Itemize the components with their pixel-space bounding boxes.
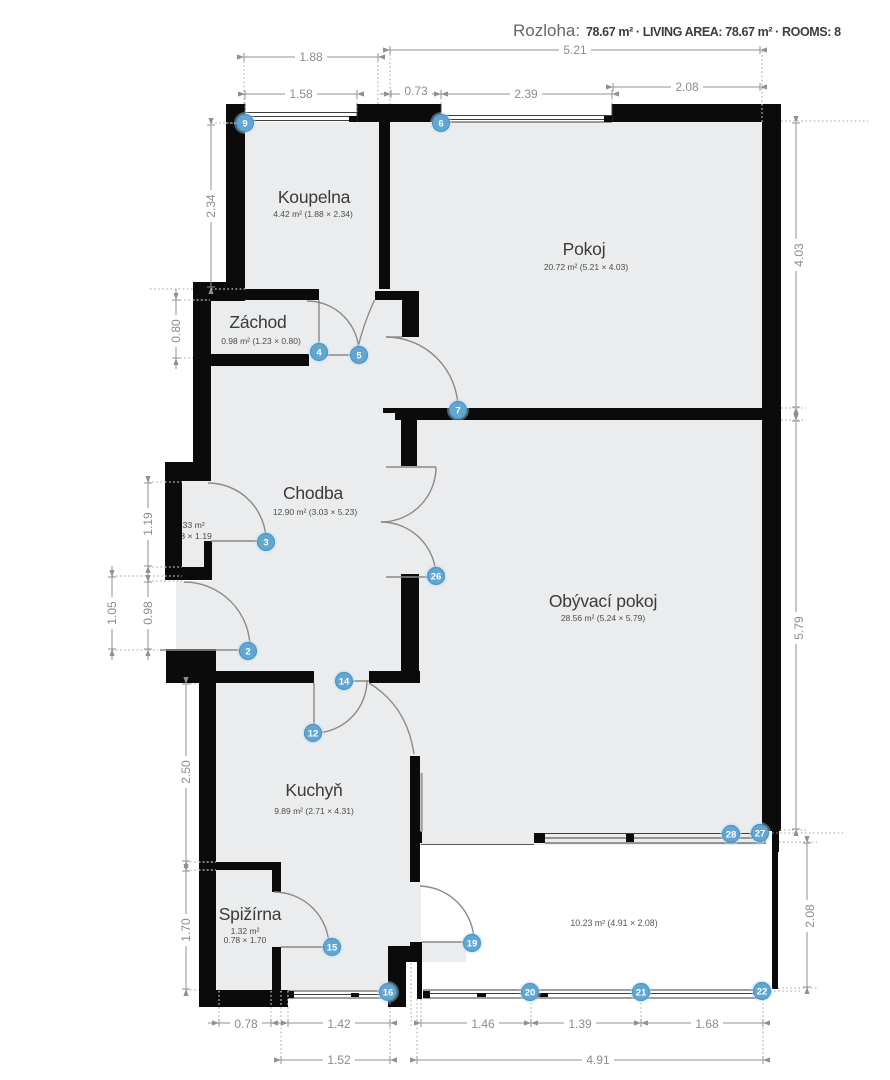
svg-text:Obývací pokoj: Obývací pokoj	[549, 591, 657, 611]
svg-text:1.52: 1.52	[327, 1053, 351, 1067]
svg-text:12: 12	[308, 729, 319, 740]
svg-text:2.39: 2.39	[514, 87, 538, 101]
svg-text:20: 20	[525, 988, 536, 999]
svg-text:4: 4	[316, 348, 322, 359]
svg-text:28: 28	[726, 830, 737, 841]
svg-text:1.88: 1.88	[299, 50, 323, 64]
svg-text:19: 19	[467, 939, 478, 950]
svg-text:2.08: 2.08	[803, 904, 817, 928]
svg-text:Rozloha:: Rozloha:	[513, 21, 580, 40]
svg-text:4.03: 4.03	[792, 243, 806, 267]
svg-text:Koupelna: Koupelna	[278, 187, 351, 207]
svg-text:0.80: 0.80	[169, 319, 183, 343]
svg-text:2: 2	[245, 647, 250, 658]
svg-text:1.70: 1.70	[179, 918, 193, 942]
svg-text:14: 14	[339, 677, 350, 688]
svg-text:1.05: 1.05	[105, 601, 119, 625]
svg-text:Pokoj: Pokoj	[563, 239, 606, 259]
svg-text:0.78 × 1.70: 0.78 × 1.70	[224, 935, 267, 945]
svg-text:10.23 m² (4.91 × 2.08): 10.23 m² (4.91 × 2.08)	[570, 918, 657, 928]
svg-text:12.90 m² (3.03 × 5.23): 12.90 m² (3.03 × 5.23)	[273, 507, 358, 517]
svg-text:4.42 m² (1.88 × 2.34): 4.42 m² (1.88 × 2.34)	[273, 209, 353, 219]
svg-text:4.91: 4.91	[586, 1053, 610, 1067]
svg-text:1.19: 1.19	[141, 512, 155, 536]
svg-text:Spižírna: Spižírna	[219, 904, 282, 924]
svg-text:2.50: 2.50	[179, 760, 193, 784]
svg-text:6: 6	[438, 119, 443, 130]
svg-text:5.79: 5.79	[792, 616, 806, 640]
svg-text:1.68: 1.68	[695, 1017, 719, 1031]
svg-text:Chodba: Chodba	[283, 483, 344, 503]
svg-text:0.78: 0.78	[234, 1017, 258, 1031]
svg-text:9.89 m² (2.71 × 4.31): 9.89 m² (2.71 × 4.31)	[274, 806, 354, 816]
svg-text:28.56 m² (5.24 × 5.79): 28.56 m² (5.24 × 5.79)	[561, 613, 646, 623]
svg-text:7: 7	[455, 406, 460, 417]
svg-text:0.98 m² (1.23 × 0.80): 0.98 m² (1.23 × 0.80)	[221, 336, 301, 346]
svg-text:27: 27	[755, 829, 766, 840]
svg-text:20.72 m² (5.21 × 4.03): 20.72 m² (5.21 × 4.03)	[544, 262, 629, 272]
svg-text:0.98: 0.98	[141, 601, 155, 625]
svg-text:Záchod: Záchod	[229, 312, 286, 332]
svg-text:Kuchyň: Kuchyň	[285, 780, 342, 800]
svg-text:78.67 m² · LIVING AREA: 78.67: 78.67 m² · LIVING AREA: 78.67 m² · ROOMS…	[586, 25, 841, 39]
svg-text:1.46: 1.46	[471, 1017, 495, 1031]
svg-text:21: 21	[636, 988, 647, 999]
svg-text:1.42: 1.42	[327, 1017, 351, 1031]
svg-text:2.08: 2.08	[675, 80, 699, 94]
svg-text:3: 3	[263, 538, 268, 549]
svg-text:26: 26	[431, 572, 442, 583]
svg-text:2.34: 2.34	[204, 194, 218, 218]
svg-text:5: 5	[356, 351, 362, 362]
svg-text:22: 22	[757, 987, 768, 998]
svg-text:15: 15	[327, 943, 338, 954]
svg-text:5.21: 5.21	[563, 43, 587, 57]
svg-text:9: 9	[242, 119, 247, 130]
svg-text:16: 16	[383, 988, 394, 999]
svg-text:0.73: 0.73	[404, 84, 428, 98]
svg-text:1.58: 1.58	[289, 87, 313, 101]
svg-text:1.39: 1.39	[568, 1017, 592, 1031]
